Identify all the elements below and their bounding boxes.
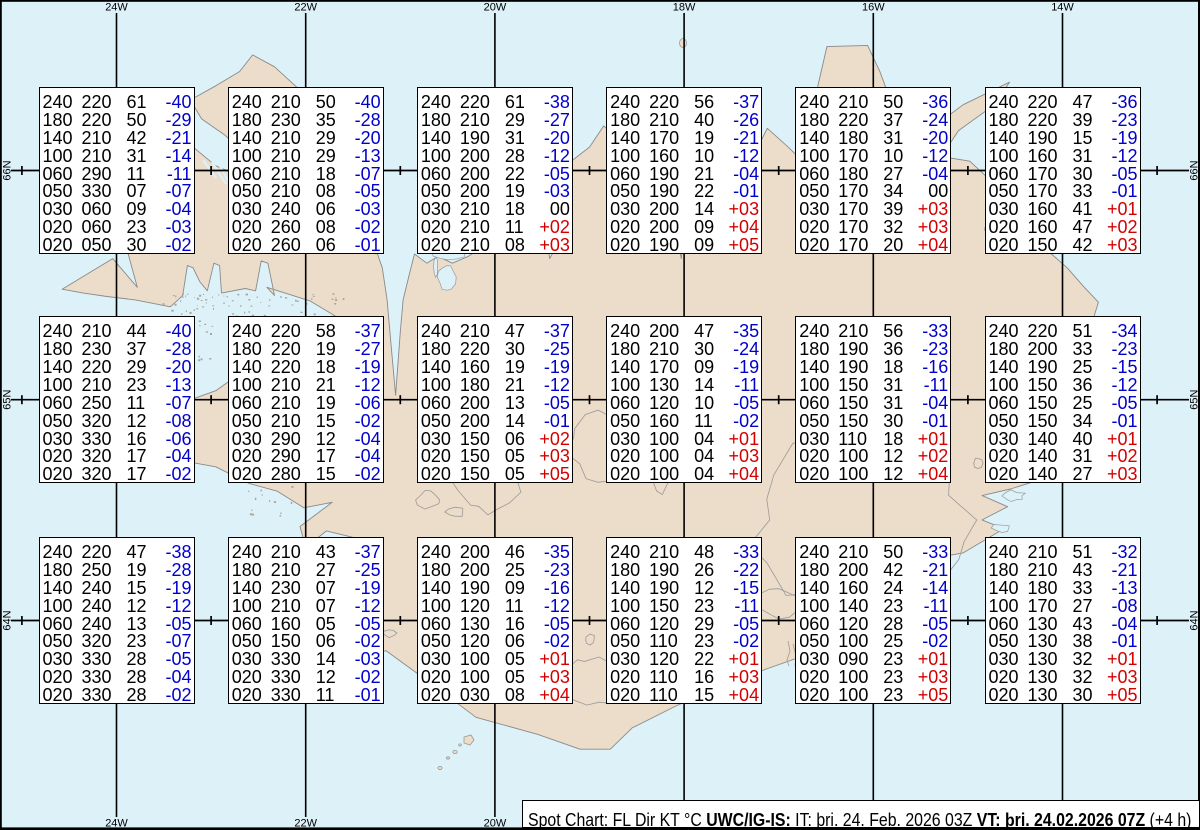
svg-text:16W: 16W	[862, 2, 885, 14]
svg-text:66N: 66N	[2, 160, 14, 180]
svg-text:65N: 65N	[2, 390, 14, 410]
svg-text:22W: 22W	[294, 2, 317, 14]
svg-text:20W: 20W	[484, 2, 507, 14]
svg-text:14W: 14W	[1051, 2, 1074, 14]
svg-text:24W: 24W	[105, 2, 128, 14]
svg-text:64N: 64N	[2, 610, 14, 630]
svg-text:18W: 18W	[673, 2, 696, 14]
